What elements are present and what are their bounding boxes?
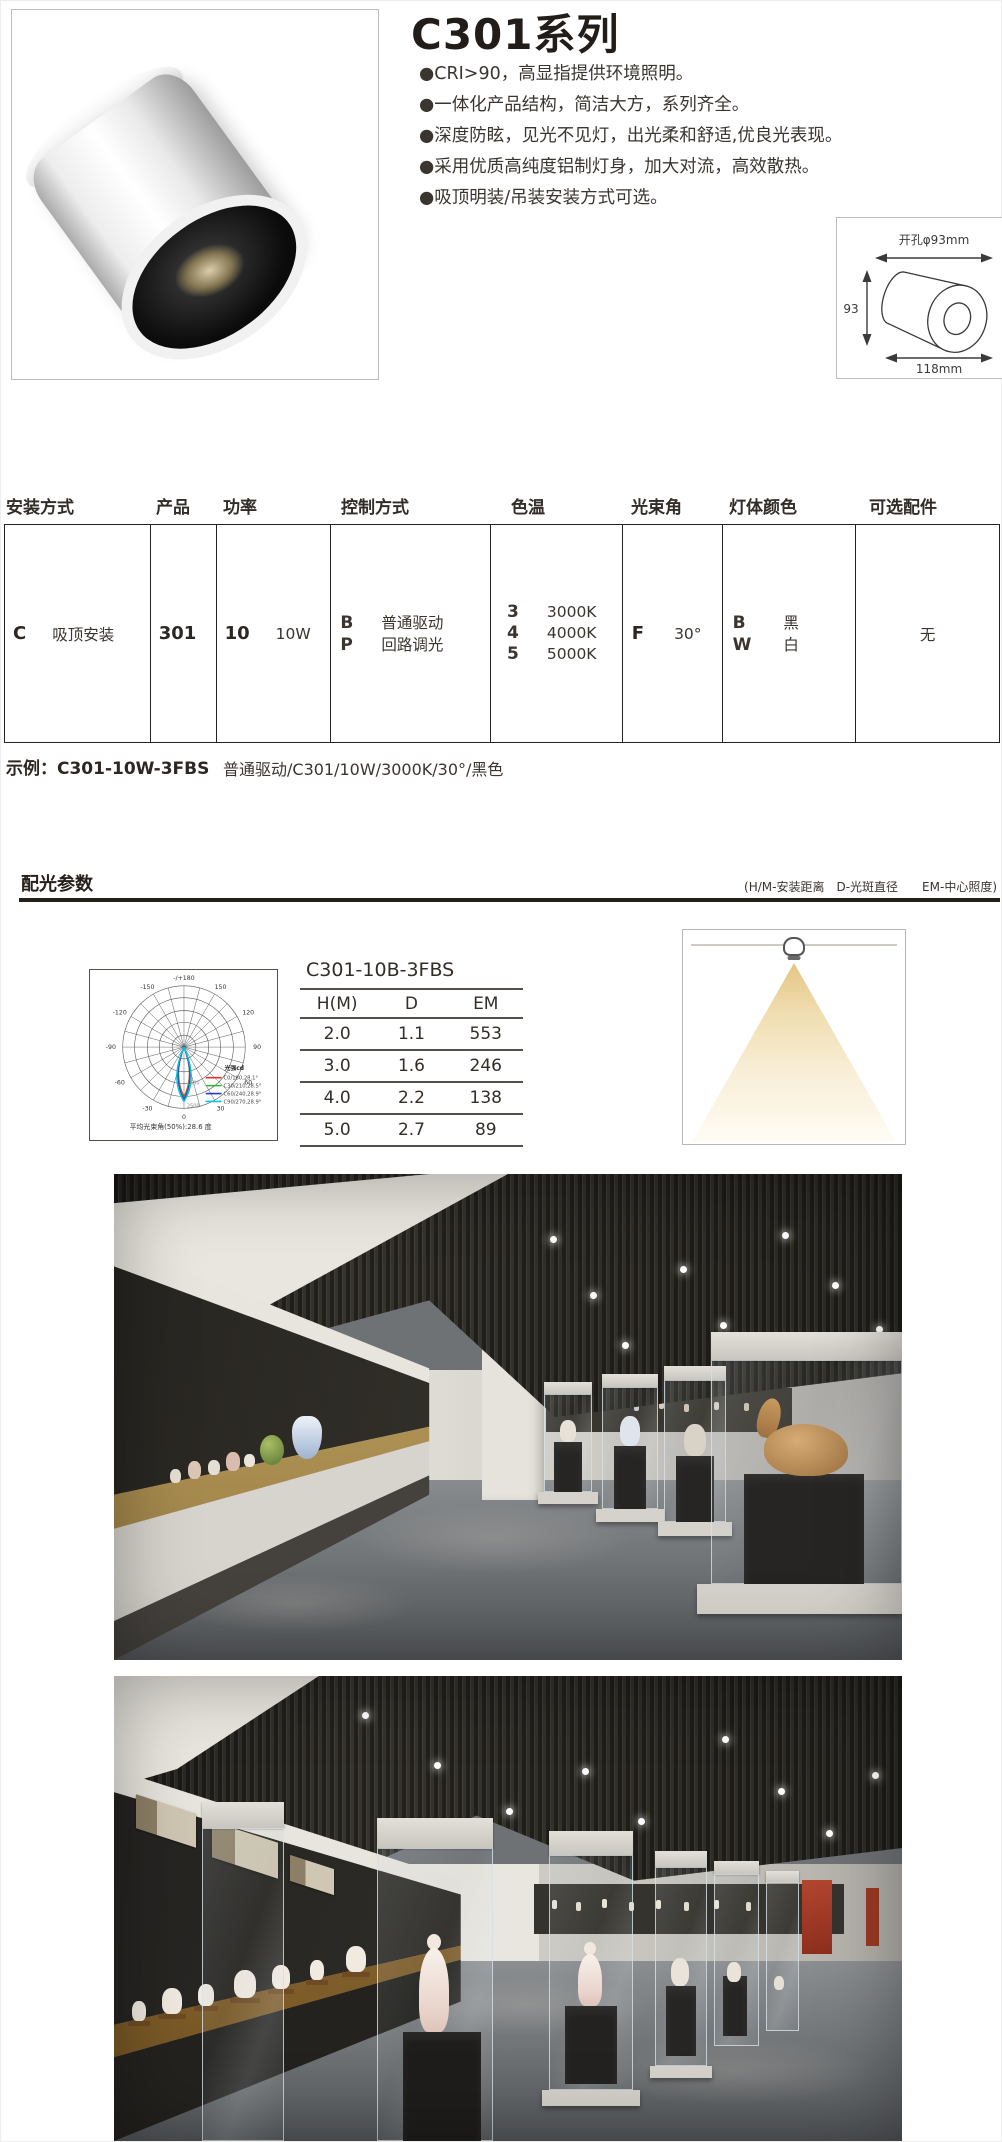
porcelain-figurine (310, 1960, 324, 1980)
color-codes: B W (733, 612, 752, 656)
gallery-photo-1 (114, 1174, 902, 1660)
vitrine-glass (766, 1882, 799, 2031)
table-row: 5.0 2.7 89 (300, 1115, 523, 1147)
artifact-green-vase (260, 1435, 284, 1465)
vitrine-artifact (560, 1420, 576, 1442)
svg-text:-120: -120 (113, 1009, 127, 1016)
artifact-vase (188, 1461, 201, 1479)
feature-item: ●深度防眩，见光不见灯，出光柔和舒适,优良光表现。 (419, 121, 842, 152)
example-label: 示例：C301-10W-3FBS (6, 754, 209, 779)
arrowhead (981, 254, 993, 263)
arrowhead (863, 334, 872, 346)
product-cell: 301 (151, 525, 217, 742)
beam-cone-diagram (682, 929, 906, 1145)
red-cabinet (866, 1888, 879, 1946)
install-cell: C 吸顶安装 (5, 525, 151, 742)
arrowhead (875, 254, 887, 263)
figurine-stand (306, 1980, 328, 1985)
feature-item: ●吸顶明装/吊装安装方式可选。 (419, 183, 842, 214)
vitrine-base (538, 1492, 598, 1504)
beam-cell: F 30° (623, 525, 723, 742)
table-row: 2.0 1.1 553 (300, 1019, 523, 1051)
install-text: 吸顶安装 (52, 623, 114, 645)
red-cabinet (802, 1880, 832, 1954)
section-divider (19, 898, 1000, 902)
polar-ring-values: 1500 2500 (187, 1081, 200, 1110)
arrowhead (981, 354, 993, 363)
catalog-page: C301系列 ●CRI>90，高显指提供环境照明。 ●一体化产品结构，简洁大方，… (0, 0, 1002, 2142)
svg-text:-150: -150 (140, 984, 154, 991)
vitrine-cap (544, 1382, 592, 1394)
downlight-product-render (11, 9, 379, 380)
pm-col-em: EM (449, 994, 523, 1014)
lamp-icon-base (788, 956, 801, 960)
dimension-diagram: 开孔φ93mm 93 118mm (836, 217, 1002, 379)
power-text: 10W (276, 625, 311, 643)
vitrine-cap (549, 1831, 633, 1855)
gallery-photo-2 (114, 1676, 902, 2141)
vitrine-plinth (666, 1986, 696, 2056)
vitrine-artifact (774, 1976, 784, 1990)
photometry-note: (H/M-安装距离 D-光斑直径 EM-中心照度) (744, 878, 997, 895)
light-cone (692, 963, 896, 1142)
table-row: 4.0 2.2 138 (300, 1083, 523, 1115)
svg-text:90: 90 (253, 1044, 261, 1051)
polar-spokes (123, 986, 246, 1109)
porcelain-figurine (162, 1988, 182, 2014)
pottery-beast-sculpture (764, 1424, 848, 1476)
col-header-color: 灯体颜色 (729, 493, 797, 518)
col-header-power: 功率 (223, 493, 257, 518)
svg-text:2500: 2500 (187, 1103, 200, 1109)
photometric-header-row: H(M) D EM (300, 990, 523, 1019)
large-vitrine-cap (377, 1818, 493, 1848)
beam-text: 30° (674, 625, 701, 643)
svg-text:0: 0 (182, 1114, 186, 1121)
body-color-cell: B W 黑 白 (723, 525, 857, 742)
photometric-table-title: C301-10B-3FBS (300, 959, 523, 981)
artifact-vase (208, 1460, 220, 1475)
page-title: C301系列 (411, 1, 620, 62)
product-code: 301 (159, 623, 197, 644)
power-code: 10 (225, 623, 250, 644)
svg-text:-30: -30 (142, 1105, 152, 1112)
vitrine-base (650, 2066, 712, 2078)
porcelain-figurine (132, 2001, 146, 2021)
legend-label: C30/210,28.5° (224, 1084, 262, 1090)
porcelain-figurine (346, 1946, 366, 1972)
floor-light-pool (354, 1504, 634, 1574)
product-photo (11, 9, 379, 380)
feature-item: ●CRI>90，高显指提供环境照明。 (419, 59, 842, 90)
col-header-cct: 色温 (511, 493, 545, 518)
lamp-led-glow (167, 234, 252, 307)
legend-label: C60/240,28.9° (224, 1092, 262, 1098)
artifact-vase (244, 1454, 255, 1467)
figurine-stand (128, 2021, 150, 2026)
large-vitrine-plinth (403, 2032, 481, 2141)
col-header-beam: 光束角 (631, 493, 682, 518)
svg-text:-60: -60 (115, 1080, 125, 1087)
arrowhead (885, 354, 897, 363)
svg-text:150: 150 (215, 984, 227, 991)
col-header-install: 安装方式 (6, 493, 74, 518)
polar-chart: -/+180 -150 150 -120 120 -90 90 -60 60 -… (89, 969, 278, 1141)
svg-text:120: 120 (242, 1009, 254, 1016)
accessory-text: 无 (920, 623, 936, 645)
vitrine-cap (714, 1861, 759, 1874)
vitrine-artifact (671, 1958, 689, 1986)
svg-text:-/+180: -/+180 (173, 975, 194, 982)
large-vitrine-base (697, 1584, 902, 1614)
figurine-stand (342, 1972, 370, 1977)
artifact-vase (226, 1452, 240, 1471)
beam-code: F (632, 623, 644, 644)
vitrine-plinth (565, 2006, 617, 2084)
table-row: 3.0 1.6 246 (300, 1051, 523, 1083)
vitrine-plinth (723, 1976, 747, 2036)
control-texts: 普通驱动 回路调光 (381, 612, 443, 656)
svg-text:1500: 1500 (187, 1081, 200, 1087)
vitrine-glass (202, 1828, 284, 2141)
vitrine-plinth (676, 1456, 714, 1522)
vitrine-artifact (620, 1416, 640, 1446)
feature-list: ●CRI>90，高显指提供环境照明。 ●一体化产品结构，简洁大方，系列齐全。 ●… (419, 59, 842, 214)
vitrine-cap (766, 1871, 799, 1882)
cct-texts: 3000K 4000K 5000K (547, 602, 597, 665)
porcelain-statue (578, 1954, 602, 2006)
avg-beam-angle-label: 平均光束角(50%):28.6 度 (130, 1122, 212, 1131)
legend-label: C0/180,28.1° (224, 1076, 259, 1082)
vitrine-base (542, 2090, 640, 2106)
example-value: 普通驱动/C301/10W/3000K/30°/黑色 (223, 756, 503, 780)
install-code: C (13, 623, 26, 644)
length-dimension-label: 118mm (916, 362, 962, 376)
spec-table: C 吸顶安装 301 10 10W B P 普通驱动 回路调光 3 4 5 (4, 524, 1000, 743)
vitrine-plinth (554, 1442, 582, 1492)
accessory-cell: 无 (856, 525, 999, 742)
col-header-control: 控制方式 (341, 493, 409, 518)
col-header-product: 产品 (156, 493, 190, 518)
vitrine-artifact (727, 1962, 741, 1982)
control-codes: B P (340, 612, 353, 656)
arrowhead (863, 270, 872, 282)
large-vitrine-cap (711, 1332, 902, 1360)
large-vitrine-plinth (744, 1474, 864, 1584)
feature-item: ●采用优质高纯度铝制灯身，加大对流，高效散热。 (419, 152, 842, 183)
downlight-spots (114, 1174, 121, 1181)
legend-title: 光强cd (223, 1064, 244, 1072)
legend-label: C90/270,28.9° (224, 1099, 262, 1105)
feature-item: ●一体化产品结构，简洁大方，系列齐全。 (419, 90, 842, 121)
vitrine-cap (602, 1374, 658, 1387)
control-cell: B P 普通驱动 回路调光 (331, 525, 491, 742)
pm-col-d: D (374, 994, 448, 1014)
downlight-spots (114, 1676, 121, 1683)
vitrine-cap (655, 1851, 707, 1867)
lamp-icon (783, 937, 805, 956)
artifact-vase (170, 1469, 181, 1483)
cct-codes: 3 4 5 (507, 602, 519, 665)
cct-cell: 3 4 5 3000K 4000K 5000K (491, 525, 623, 742)
vitrine-base (596, 1509, 664, 1522)
polar-legend: C0/180,28.1° C30/210,28.5° C60/240,28.9°… (206, 1076, 262, 1106)
svg-text:-90: -90 (106, 1044, 116, 1051)
figurine-stand (158, 2014, 186, 2019)
porcelain-statue (419, 1948, 449, 2032)
height-dimension-label: 93 (843, 302, 858, 316)
vitrine-cap (202, 1802, 284, 1828)
pm-col-h: H(M) (300, 994, 374, 1014)
power-cell: 10 10W (217, 525, 332, 742)
vitrine-plinth (614, 1446, 646, 1509)
photometry-section-title: 配光参数 (21, 870, 93, 896)
vitrine-artifact (684, 1424, 706, 1456)
photometric-table: H(M) D EM 2.0 1.1 553 3.0 1.6 246 4.0 2.… (300, 988, 523, 1147)
col-header-accessory: 可选配件 (869, 493, 937, 518)
color-texts: 黑 白 (783, 612, 799, 656)
cylinder-sketch (874, 263, 996, 360)
svg-text:30: 30 (217, 1105, 225, 1112)
hole-dimension-label: 开孔φ93mm (899, 233, 970, 247)
